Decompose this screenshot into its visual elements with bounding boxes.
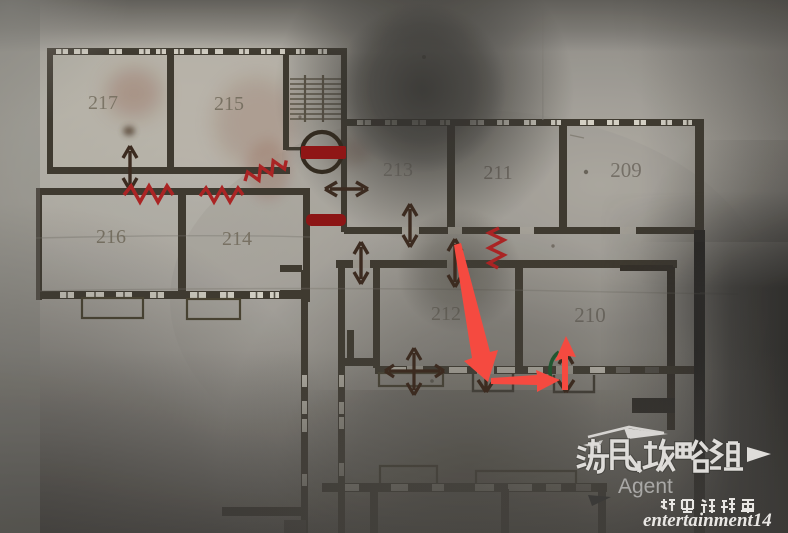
svg-text:entertainment14: entertainment14 [643, 510, 772, 531]
svg-text:Agent: Agent [618, 475, 673, 498]
